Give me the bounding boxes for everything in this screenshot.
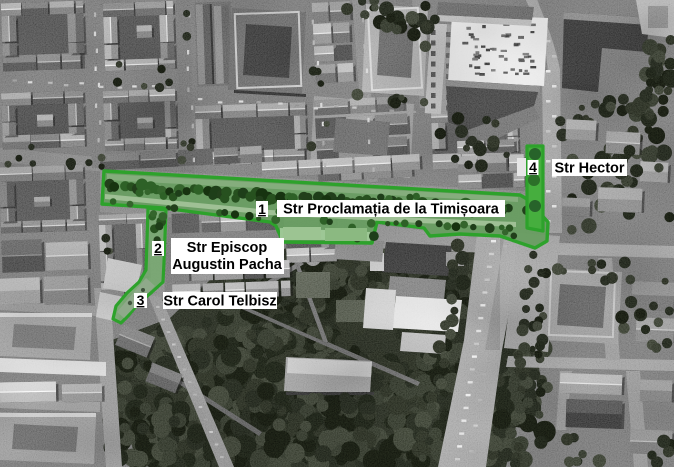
svg-text:2: 2 bbox=[154, 240, 162, 256]
svg-text:Augustin Pacha: Augustin Pacha bbox=[172, 257, 283, 273]
svg-text:Str Episcop: Str Episcop bbox=[187, 240, 268, 256]
svg-text:3: 3 bbox=[137, 292, 145, 308]
svg-text:Str Carol Telbisz: Str Carol Telbisz bbox=[163, 294, 276, 310]
svg-text:1: 1 bbox=[258, 201, 266, 217]
svg-text:Str Proclamația de la Timișoar: Str Proclamația de la Timișoara bbox=[283, 202, 500, 218]
svg-text:4: 4 bbox=[529, 159, 537, 175]
svg-text:Str Hector: Str Hector bbox=[554, 161, 624, 177]
